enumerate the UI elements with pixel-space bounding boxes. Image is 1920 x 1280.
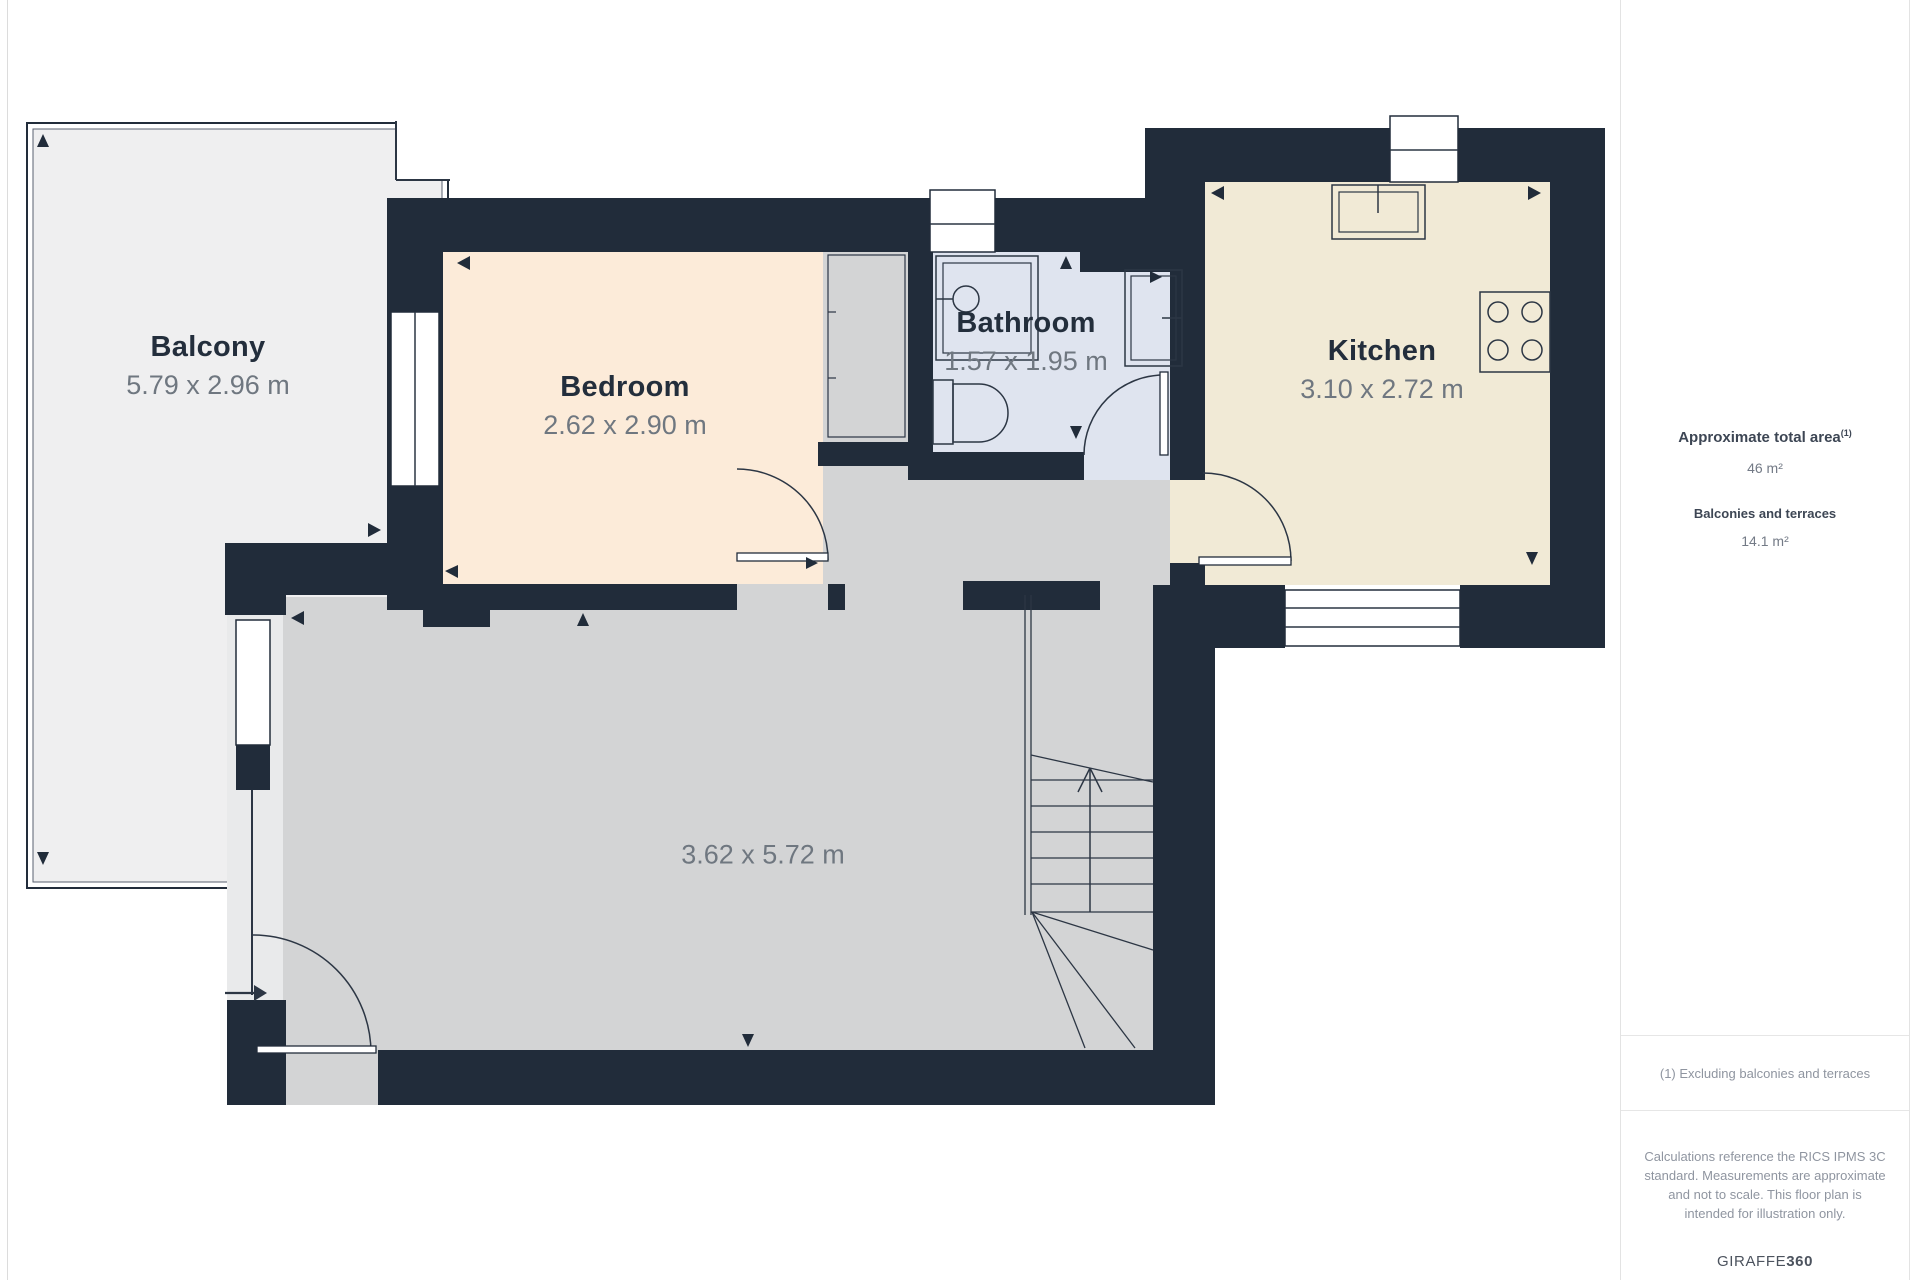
brand-prefix: GIRAFFE [1717,1253,1786,1270]
kitchen-door-gap [1170,477,1205,563]
living-area-dimensions: 3.62 x 5.72 m [681,840,845,871]
room-label-living-area: 3.62 x 5.72 m [681,834,845,871]
floor-plan-page: { "plan": { "rooms": [ {"key":"balcony",… [0,0,1920,1280]
sidebar-divider-top [1621,1035,1909,1036]
disclaimer: Calculations reference the RICS IPMS 3C … [1642,1147,1888,1223]
footnote: (1) Excluding balconies and terraces [1621,1066,1909,1081]
bedroom-name: Bedroom [543,371,707,404]
living-floor [283,597,1153,1050]
total-area-value: 46 m² [1621,460,1909,476]
bathroom-door-gap [1084,452,1170,480]
room-label-bedroom: Bedroom 2.62 x 2.90 m [543,371,707,441]
balcony-name: Balcony [126,331,290,364]
kitchen-name: Kitchen [1300,335,1464,368]
room-label-kitchen: Kitchen 3.10 x 2.72 m [1300,335,1464,405]
balconies-value: 14.1 m² [1621,533,1909,549]
kitchen-dimensions: 3.10 x 2.72 m [1300,374,1464,405]
bedroom-balcony-window [391,312,439,486]
floor-plan: Balcony 5.79 x 2.96 m Bedroom 2.62 x 2.9… [0,0,1620,1280]
room-label-bathroom: Bathroom 1.57 x 1.95 m [944,307,1108,377]
room-label-balcony: Balcony 5.79 x 2.96 m [126,331,290,401]
sidebar-divider-bottom [1621,1110,1909,1111]
niche-window [930,190,995,252]
bedroom-door-gap [737,584,828,610]
kitchen-top-window [1390,116,1458,182]
bathroom-dimensions: 1.57 x 1.95 m [944,346,1108,377]
total-area-label-text: Approximate total area [1678,429,1841,446]
balcony-dimensions: 5.79 x 2.96 m [126,370,290,401]
niche-floor [823,252,908,452]
total-area-label: Approximate total area(1) [1621,428,1909,446]
kitchen-bottom-window [1285,590,1460,646]
brand-suffix: 360 [1786,1253,1813,1270]
balconies-label: Balconies and terraces [1621,506,1909,521]
info-sidebar: Approximate total area(1) 46 m² Balconie… [1620,0,1910,1280]
bathroom-name: Bathroom [944,307,1108,340]
brand-logo: GIRAFFE360 [1621,1253,1909,1270]
bedroom-dimensions: 2.62 x 2.90 m [543,410,707,441]
total-area-superscript: (1) [1841,428,1852,438]
floor-plan-canvas [0,0,1620,1280]
